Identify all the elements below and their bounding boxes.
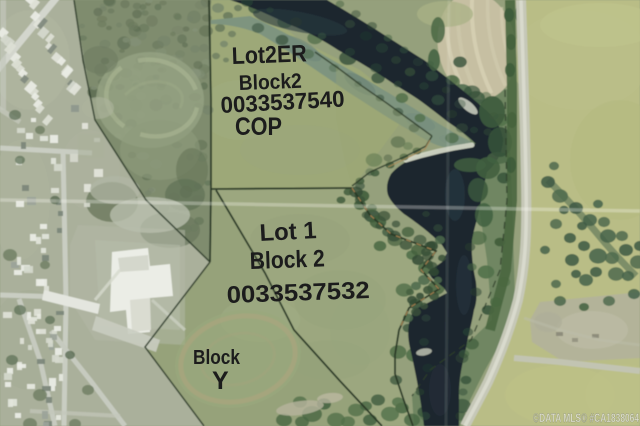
svg-text:©DATA MLS® #CA1838064: ©DATA MLS® #CA1838064 <box>533 411 639 425</box>
svg-text:Block 2: Block 2 <box>249 245 325 275</box>
svg-text:Block: Block <box>193 347 241 369</box>
svg-text:0033537532: 0033537532 <box>226 277 370 309</box>
svg-text:Lot 1: Lot 1 <box>259 217 317 247</box>
svg-text:COP: COP <box>235 113 282 141</box>
svg-text:Lot2ER: Lot2ER <box>231 40 307 70</box>
svg-text:Y: Y <box>212 367 229 395</box>
